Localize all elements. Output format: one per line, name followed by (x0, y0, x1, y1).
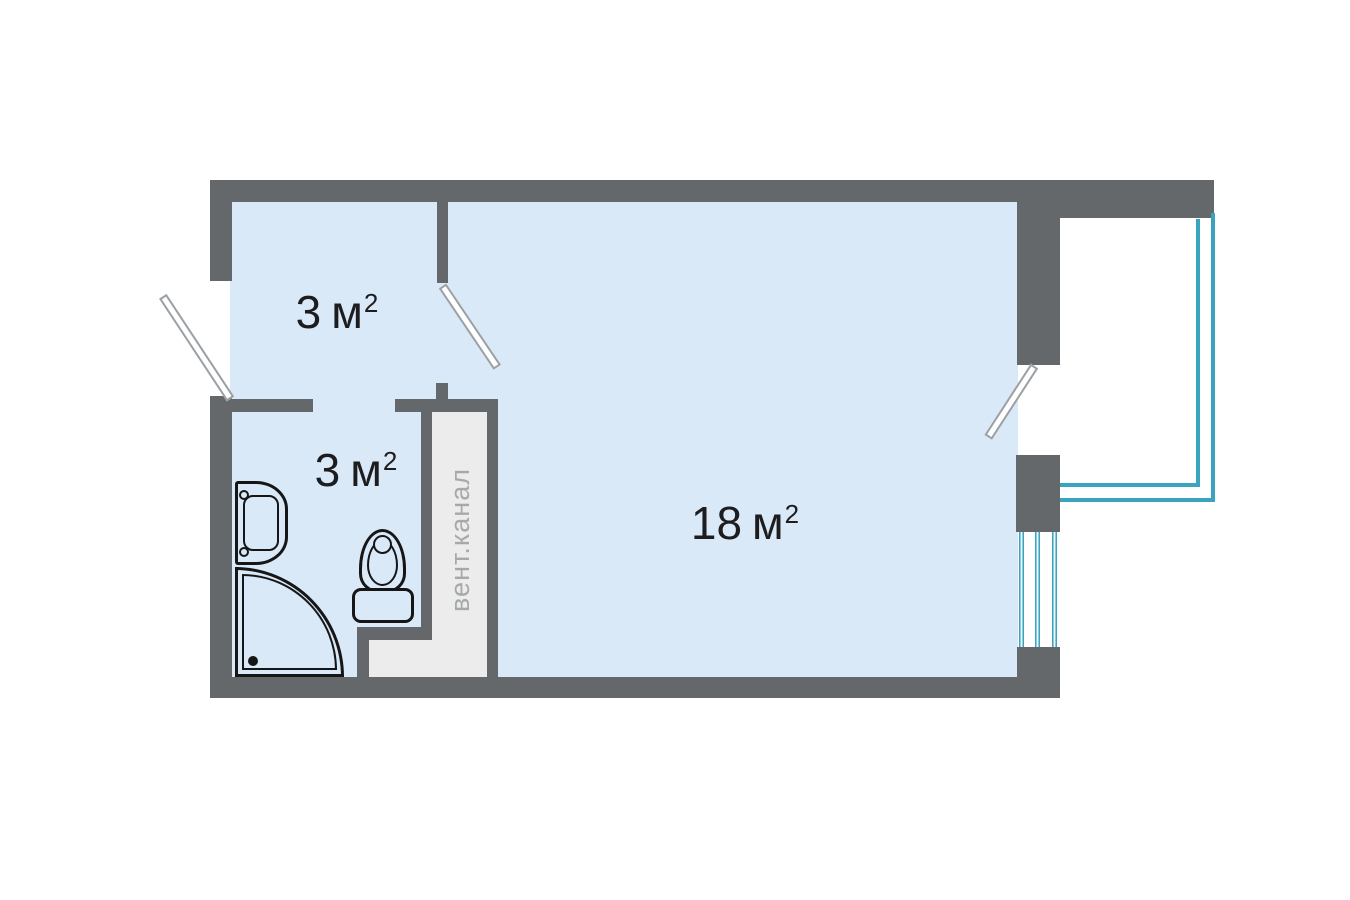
bathroom-area-label: 3м2 (296, 445, 416, 502)
wall-balcony-pillar-mid (1016, 455, 1060, 532)
wall-vent-step-vertical (357, 640, 369, 677)
wall-top-balcony (1057, 180, 1214, 218)
wall-partition-stub (436, 383, 448, 400)
wall-vent-left (421, 410, 432, 640)
balcony-rail-bottom-inner (1060, 483, 1200, 487)
balcony-rail-right-inner (1196, 219, 1200, 487)
wall-bottom (210, 677, 1060, 698)
wall-top (210, 180, 1060, 202)
toilet-flush-button (373, 535, 392, 554)
vent-channel-label: вент.канал (444, 445, 476, 635)
living-room-area-label: 18м2 (650, 498, 840, 555)
hallway-area-sup: 2 (364, 288, 378, 318)
sink-bolt-bottom (239, 547, 249, 557)
living-room-area-sup: 2 (785, 499, 799, 529)
wall-bathroom-top-right (395, 399, 498, 412)
sink-bolt-top (239, 490, 249, 500)
hallway-area-value: 3 (296, 286, 322, 338)
wall-partition-hallway (437, 199, 448, 283)
wall-balcony-pillar-upper (1017, 198, 1060, 365)
sink-basin (243, 495, 279, 551)
vent-shaft-extension (369, 640, 487, 677)
balcony-rail-right-outer (1211, 213, 1215, 502)
wall-vent-right (487, 410, 498, 677)
living-room-area-unit: м (752, 497, 784, 549)
shower-drain-dot (248, 656, 258, 666)
window-glazing-line (1019, 532, 1024, 647)
sink (235, 481, 288, 565)
living-room-floor (437, 200, 1018, 677)
toilet-tank (352, 588, 414, 623)
hallway-area-label: 3м2 (277, 287, 397, 344)
balcony-rail-bottom-outer (1060, 498, 1215, 502)
hallway-area-unit: м (331, 286, 363, 338)
bathroom-area-value: 3 (315, 444, 341, 496)
wall-corner-southeast (1017, 647, 1060, 698)
entrance-door-leaf (159, 294, 234, 402)
window-glazing-line (1035, 532, 1040, 647)
window-glazing-line (1052, 532, 1057, 647)
wall-left-upper (210, 180, 232, 281)
floor-plan: 3м2 3м2 18м2 вент.канал (0, 0, 1350, 900)
living-room-area-value: 18 (691, 497, 742, 549)
wall-vent-step-horizontal (357, 627, 432, 640)
wall-bathroom-top-left (230, 399, 313, 412)
bathroom-area-unit: м (350, 444, 382, 496)
bathroom-area-sup: 2 (383, 446, 397, 476)
wall-left-lower (210, 396, 232, 698)
